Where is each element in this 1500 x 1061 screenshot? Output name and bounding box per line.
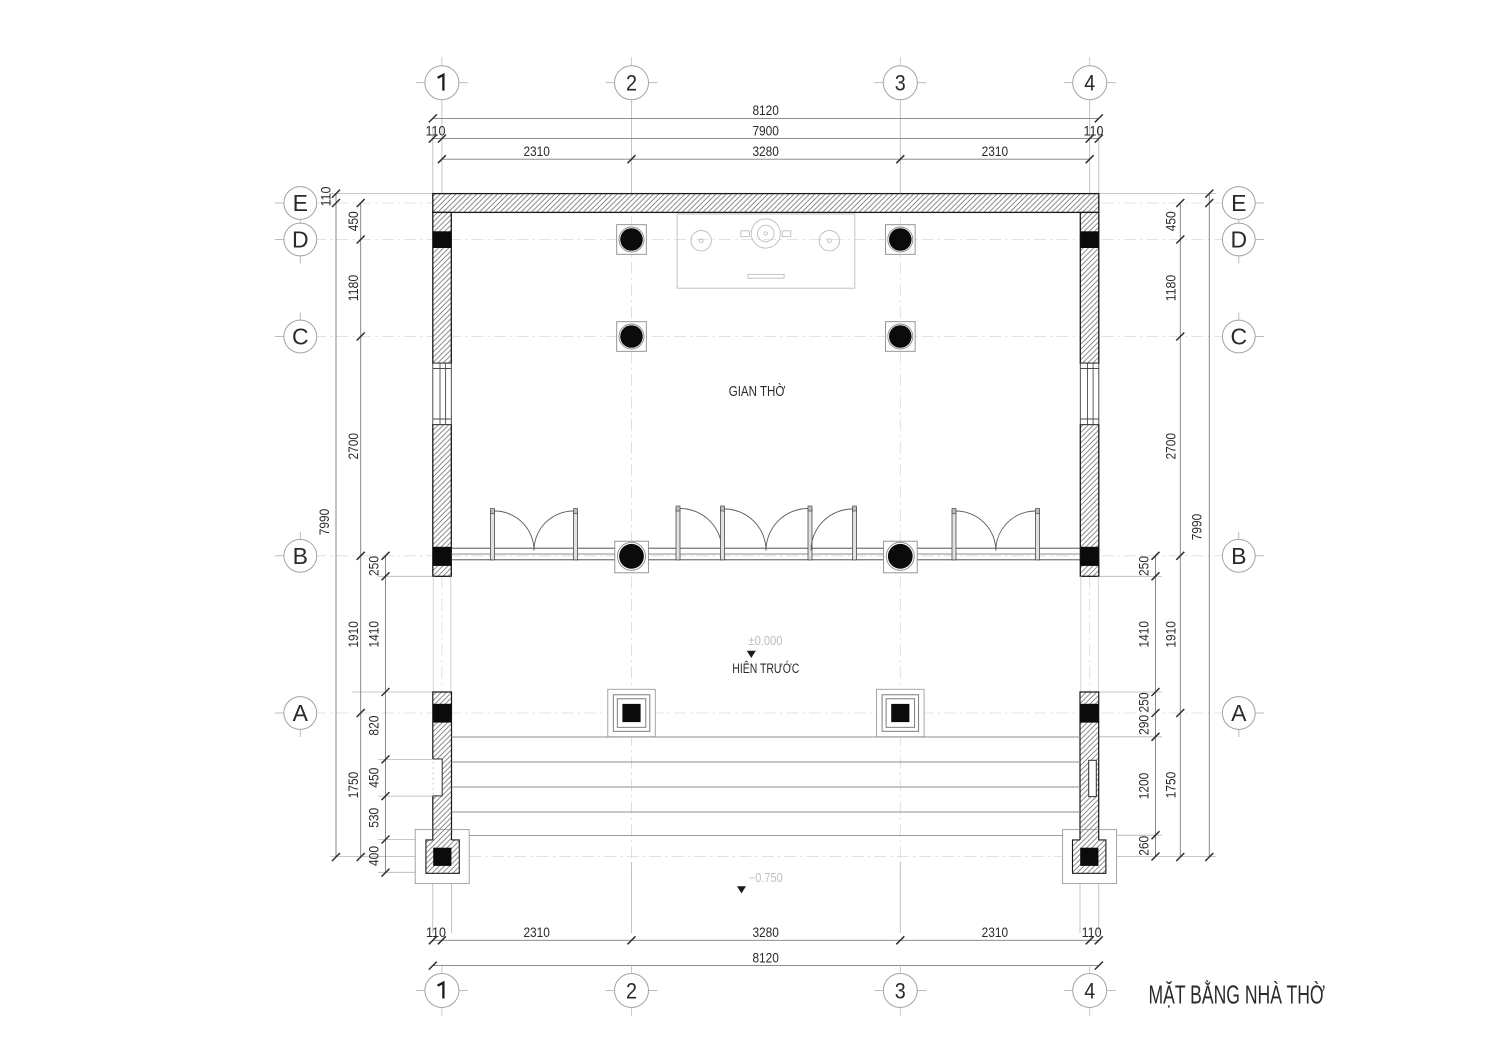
svg-text:MẶT BẰNG NHÀ THỜ: MẶT BẰNG NHÀ THỜ — [1149, 979, 1326, 1009]
svg-text:1910: 1910 — [346, 621, 361, 648]
svg-text:2700: 2700 — [1164, 433, 1179, 460]
svg-text:A: A — [293, 700, 309, 726]
svg-text:2: 2 — [626, 71, 637, 96]
svg-text:HIÊN TRƯỚC: HIÊN TRƯỚC — [732, 661, 799, 676]
svg-text:1750: 1750 — [346, 772, 361, 799]
svg-text:7990: 7990 — [1190, 514, 1205, 541]
svg-text:−0.750: −0.750 — [749, 871, 783, 885]
svg-text:7900: 7900 — [752, 124, 779, 139]
svg-text:2: 2 — [626, 978, 637, 1003]
svg-text:820: 820 — [367, 716, 382, 736]
svg-text:2310: 2310 — [523, 925, 550, 940]
svg-text:B: B — [1231, 543, 1246, 569]
svg-text:D: D — [1230, 227, 1247, 253]
svg-text:1180: 1180 — [346, 275, 361, 302]
svg-text:2310: 2310 — [982, 925, 1009, 940]
svg-text:250: 250 — [1137, 693, 1152, 713]
svg-text:450: 450 — [1164, 211, 1179, 231]
svg-text:2310: 2310 — [982, 144, 1009, 159]
svg-text:2700: 2700 — [346, 433, 361, 460]
svg-text:450: 450 — [346, 211, 361, 231]
svg-text:C: C — [292, 324, 309, 350]
svg-text:4: 4 — [1084, 71, 1095, 96]
svg-text:1750: 1750 — [1164, 772, 1179, 799]
svg-text:290: 290 — [1137, 715, 1152, 735]
svg-text:110: 110 — [1084, 124, 1104, 139]
svg-text:D: D — [292, 227, 309, 253]
svg-text:250: 250 — [367, 556, 382, 576]
svg-text:1200: 1200 — [1137, 773, 1152, 800]
svg-text:3: 3 — [895, 978, 906, 1003]
svg-text:B: B — [293, 543, 308, 569]
svg-text:C: C — [1230, 324, 1247, 350]
svg-text:1410: 1410 — [1137, 621, 1152, 648]
svg-text:E: E — [1231, 190, 1246, 216]
svg-text:8120: 8120 — [752, 103, 779, 118]
svg-text:450: 450 — [367, 768, 382, 788]
svg-text:1410: 1410 — [367, 621, 382, 648]
svg-text:530: 530 — [367, 808, 382, 828]
svg-text:3280: 3280 — [752, 925, 779, 940]
svg-text:2310: 2310 — [523, 144, 550, 159]
svg-text:7990: 7990 — [317, 509, 332, 536]
svg-text:1180: 1180 — [1164, 275, 1179, 302]
svg-text:260: 260 — [1137, 836, 1152, 856]
svg-text:110: 110 — [1082, 925, 1102, 940]
svg-text:3: 3 — [895, 71, 906, 96]
svg-text:250: 250 — [1137, 556, 1152, 576]
svg-text:E: E — [293, 190, 308, 216]
svg-text:4: 4 — [1084, 978, 1095, 1003]
svg-text:110: 110 — [426, 925, 446, 940]
svg-text:1910: 1910 — [1164, 621, 1179, 648]
svg-text:3280: 3280 — [752, 144, 779, 159]
svg-text:110: 110 — [319, 187, 334, 207]
svg-text:8120: 8120 — [752, 950, 779, 965]
svg-text:110: 110 — [426, 124, 446, 139]
svg-text:GIAN THỜ: GIAN THỜ — [729, 383, 786, 400]
svg-text:400: 400 — [367, 846, 382, 866]
svg-text:±0.000: ±0.000 — [749, 634, 783, 648]
svg-text:A: A — [1231, 700, 1247, 726]
